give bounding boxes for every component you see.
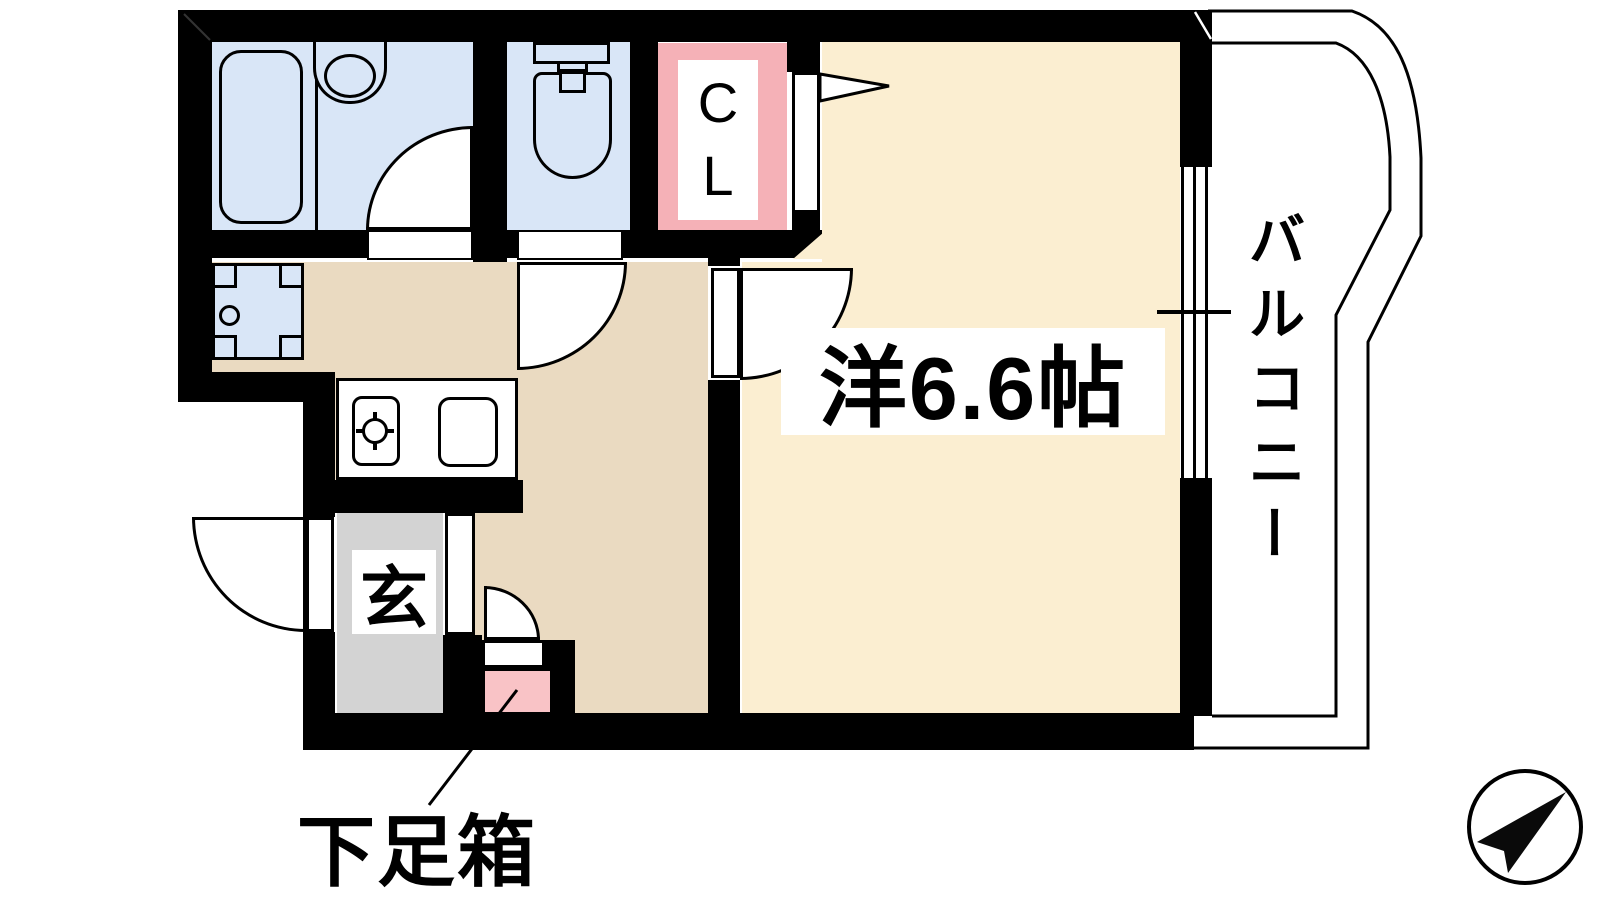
wall-bottom: [303, 713, 1194, 750]
wall-bath-toilet: [473, 42, 507, 262]
pan-corner-tr: [279, 263, 304, 288]
wall-left-upper: [178, 10, 212, 372]
toilet-seat-hinge: [559, 74, 586, 93]
main-room-floor-upper: [822, 42, 1180, 264]
wall-shoebox-left: [443, 635, 482, 717]
closet-door: [792, 72, 820, 213]
burner-tick-w: [356, 429, 364, 433]
closet-label: CL: [678, 60, 758, 220]
pan-drain: [219, 305, 240, 326]
entrance-label: 玄: [352, 550, 436, 634]
room-door-leaf: [711, 268, 740, 378]
window-track-3: [1205, 167, 1208, 478]
wall-closet-pier: [787, 42, 820, 72]
burner-tick-e: [386, 429, 394, 433]
wall-toilet-closet: [630, 42, 658, 230]
wall-kitchen-entrance: [303, 480, 523, 513]
bathroom-door-opening: [367, 230, 473, 260]
bathtub: [219, 50, 303, 224]
hall-floor-4: [575, 640, 712, 715]
bathroom-sink-bowl: [324, 54, 376, 98]
wall-left-step: [178, 372, 335, 402]
entrance-door-leaf: [306, 517, 334, 632]
floor-plan: CL 洋6.6帖 玄 下足箱 バルコニー: [0, 0, 1600, 900]
stove-burner: [362, 418, 388, 444]
window-track-2: [1193, 167, 1196, 478]
wall-right-lower: [1180, 478, 1212, 716]
window-track-1: [1181, 167, 1184, 478]
shoebox: [482, 668, 553, 715]
toilet-tank-knob: [557, 61, 588, 72]
shoebox-door: [482, 640, 545, 668]
window-center-mark: [1157, 310, 1231, 314]
burner-tick-n: [373, 412, 377, 420]
pan-corner-tl: [212, 263, 237, 288]
entrance-step: [445, 513, 475, 635]
pan-corner-br: [279, 335, 304, 360]
kitchen-sink: [438, 397, 498, 467]
balcony-label: バルコニー: [1242, 184, 1312, 584]
wall-top: [178, 10, 1212, 42]
shoebox-label: 下足箱: [282, 800, 552, 892]
main-room-label: 洋6.6帖: [781, 328, 1165, 435]
wall-under-closet-door: [792, 211, 820, 231]
pan-corner-bl: [212, 335, 237, 360]
wall-right-upper: [1180, 42, 1212, 167]
toilet-door-opening: [517, 230, 623, 260]
burner-tick-s: [373, 442, 377, 450]
